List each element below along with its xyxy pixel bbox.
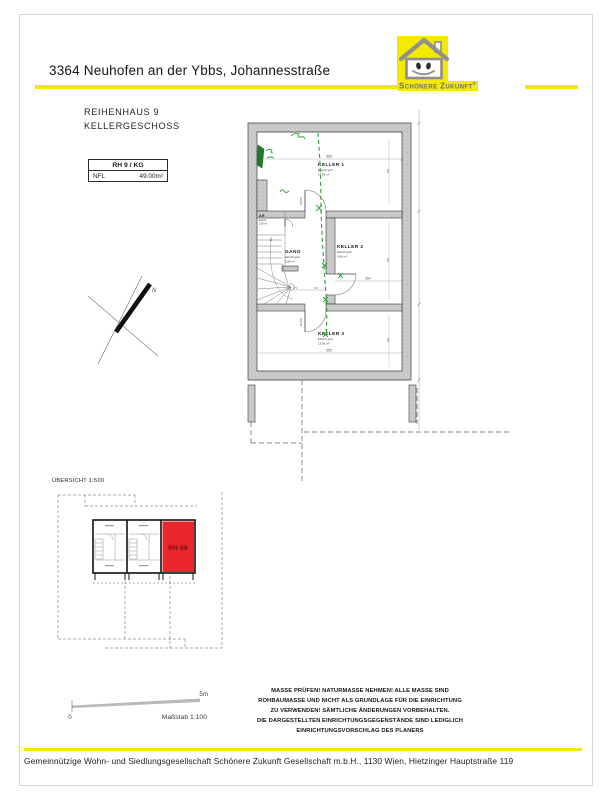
- room-label-keller1: KELLER 1Estrich geb.17.93 m²: [318, 162, 344, 176]
- disclaimer-line: ZU VERWENDEN! SÄMTLICHE ÄNDERUNGEN VORBE…: [252, 706, 468, 716]
- dim-keller3-width: 555: [326, 349, 332, 353]
- terrace-stubs: [95, 573, 193, 580]
- header-rule-left: [35, 85, 397, 89]
- brand-wordmark: Schönere Zukunft®: [397, 81, 478, 91]
- nfl-label: NFL: [93, 173, 105, 180]
- foundation-stubs: [248, 385, 416, 422]
- smiling-house-icon: [397, 34, 453, 84]
- dim-door1-size: 80/205: [299, 196, 303, 205]
- interior-walls: [257, 180, 402, 311]
- page-title: 3364 Neuhofen an der Ybbs, Johannesstraß…: [49, 63, 330, 78]
- disclaimer-block: MASSE PRÜFEN! NATURMASSE NEHMEN! ALLE MA…: [252, 686, 468, 736]
- overview-title: ÜBERSICHT 1:500: [52, 477, 104, 484]
- wordmark-text: Schönere Zukunft: [399, 82, 473, 91]
- dim-gang-door: 90: [315, 286, 318, 290]
- footer-text: Gemeinnützige Wohn- und Siedlungsgesells…: [24, 756, 592, 766]
- room-label-gang: GANGEstrich geb.5.96 m²: [285, 249, 301, 263]
- disclaimer-line: EINRICHTUNGSVORSCHLAG DES PLANERS: [252, 726, 468, 736]
- north-arrow: N: [80, 268, 172, 372]
- brand-logo: Schönere Zukunft®: [397, 36, 583, 90]
- scale-zero: 0: [68, 714, 72, 721]
- registered-mark: ®: [473, 81, 477, 86]
- dim-keller3-depth: 200: [386, 337, 390, 342]
- dim-gang-width: 170: [293, 286, 298, 290]
- rowhouse-block: RH 09: [93, 520, 195, 580]
- disclaimer-line: ROHBAUMASSE UND NICHT ALS GRUNDLAGE FÜR …: [252, 696, 468, 706]
- document-page: 3364 Neuhofen an der Ybbs, Johannesstraß…: [0, 0, 612, 792]
- dim-keller2-depth: 285: [386, 257, 390, 262]
- scale-wedge: [72, 699, 200, 709]
- info-box-title: RH 9 / KG: [89, 160, 167, 171]
- dim-keller1-width: 555: [326, 155, 332, 159]
- room-label-keller2: KELLER 2Estrich geb.9.46 m²: [337, 244, 363, 258]
- dim-keller2-width: 364: [365, 277, 371, 281]
- area-info-box: RH 9 / KG NFL 49.00m²: [88, 159, 168, 182]
- plan-title-line2: KELLERGESCHOSS: [84, 120, 180, 134]
- scale-bar: 5m 0 Maßstab 1:100: [58, 688, 218, 724]
- north-label: N: [152, 288, 157, 294]
- plan-title: REIHENHAUS 9 KELLERGESCHOSS: [84, 106, 180, 133]
- scale-label: Maßstab 1:100: [162, 714, 208, 721]
- dim-door3-size: 80/205: [299, 317, 303, 326]
- disclaimer-line: DIE DARGESTELLTEN EINRICHTUNGSGEGENSTÄND…: [252, 716, 468, 726]
- projection-dashed-lines: [251, 380, 510, 482]
- scale-max: 5m: [199, 691, 208, 698]
- floorplan-drawing: 555 364 555 170 90 255 285 200 80/205 80…: [238, 108, 518, 486]
- dimension-lines: [256, 110, 421, 430]
- highlighted-unit-label: RH 09: [168, 545, 188, 552]
- overview-siteplan: ÜBERSICHT 1:500: [45, 468, 235, 660]
- plan-title-line1: REIHENHAUS 9: [84, 106, 180, 120]
- footer-rule: [24, 748, 582, 751]
- disclaimer-line: MASSE PRÜFEN! NATURMASSE NEHMEN! ALLE MA…: [252, 686, 468, 696]
- room-label-keller3: KELLER 3Estrich geb.13.05 m²: [318, 331, 344, 345]
- nfl-value: 49.00m²: [140, 173, 163, 180]
- dim-keller1-depth: 255: [386, 168, 390, 173]
